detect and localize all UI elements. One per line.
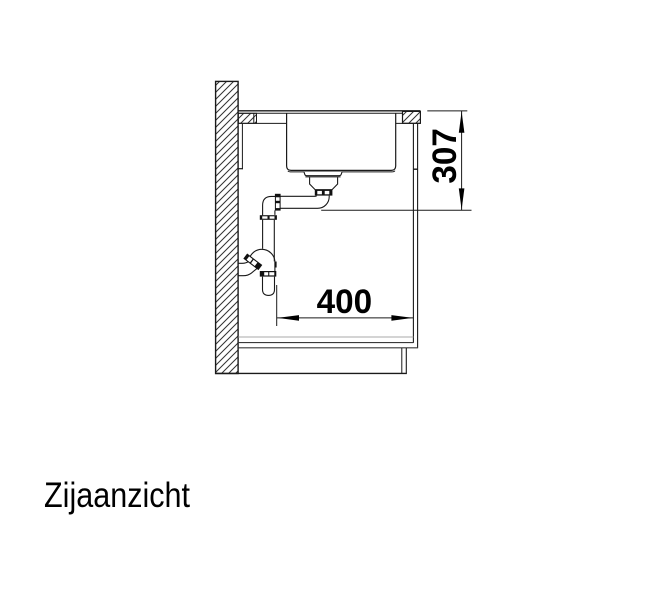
svg-text:400: 400 (317, 283, 373, 321)
svg-text:Zijaanzicht: Zijaanzicht (44, 475, 190, 515)
svg-text:307: 307 (426, 128, 464, 184)
